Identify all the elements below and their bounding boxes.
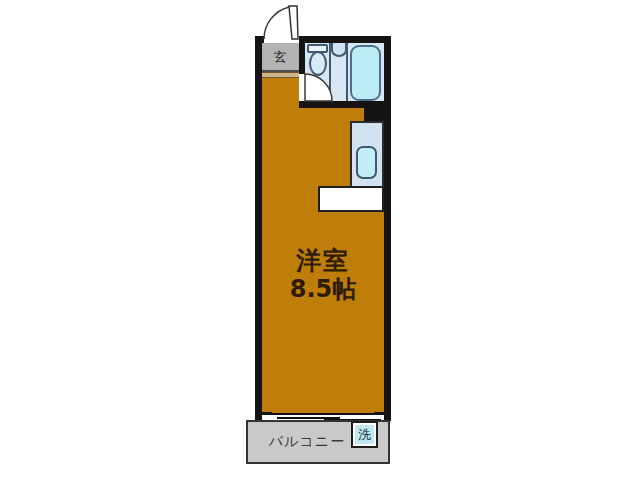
entrance-door-arc-icon (264, 7, 289, 39)
bathtub-icon (350, 45, 381, 101)
wall-left (255, 36, 262, 421)
room-label: 洋室 8.5帖 (261, 247, 385, 303)
entrance-area: 玄 (258, 41, 302, 72)
wall-right (384, 36, 391, 421)
toilet-icon (309, 51, 327, 76)
sink-icon (331, 43, 347, 57)
kitchen-sink-icon (356, 146, 377, 179)
floor-plan: 玄 バルコニー 洗 洋室 8.5帖 (0, 0, 640, 480)
bathroom-door-opening (299, 74, 305, 101)
room-name: 洋室 (261, 247, 385, 275)
room-size: 8.5帖 (261, 275, 385, 303)
entrance-door-opening (264, 36, 299, 43)
entrance-door-leaf-icon (289, 6, 298, 39)
wall-kitchen-step (364, 108, 391, 121)
entrance-step (259, 72, 302, 78)
entrance-label: 玄 (274, 48, 287, 66)
washer-label: 洗 (358, 426, 371, 444)
washer-box: 洗 (351, 421, 378, 448)
wall-bathroom-bottom (299, 101, 391, 108)
counter (318, 186, 384, 212)
